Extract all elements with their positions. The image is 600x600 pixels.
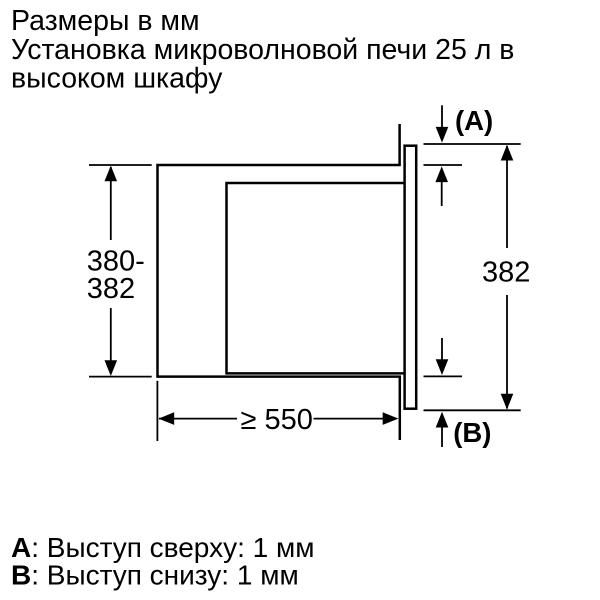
svg-text:382: 382 bbox=[87, 273, 135, 305]
svg-text:(B): (B) bbox=[453, 417, 491, 448]
svg-text:(A): (A) bbox=[455, 105, 493, 136]
svg-text:≥ 550: ≥ 550 bbox=[241, 404, 313, 436]
svg-text:Размеры в мм: Размеры в мм bbox=[11, 5, 200, 37]
svg-text:382: 382 bbox=[482, 257, 530, 289]
svg-text:A: Выступ сверху: 1 мм: A: Выступ сверху: 1 мм bbox=[11, 532, 314, 563]
svg-text:высоком шкафу: высоком шкафу bbox=[11, 63, 223, 95]
svg-text:B: Выступ снизу: 1 мм: B: Выступ снизу: 1 мм bbox=[11, 560, 299, 591]
svg-text:Установка микроволновой печи 2: Установка микроволновой печи 25 л в bbox=[11, 34, 514, 66]
